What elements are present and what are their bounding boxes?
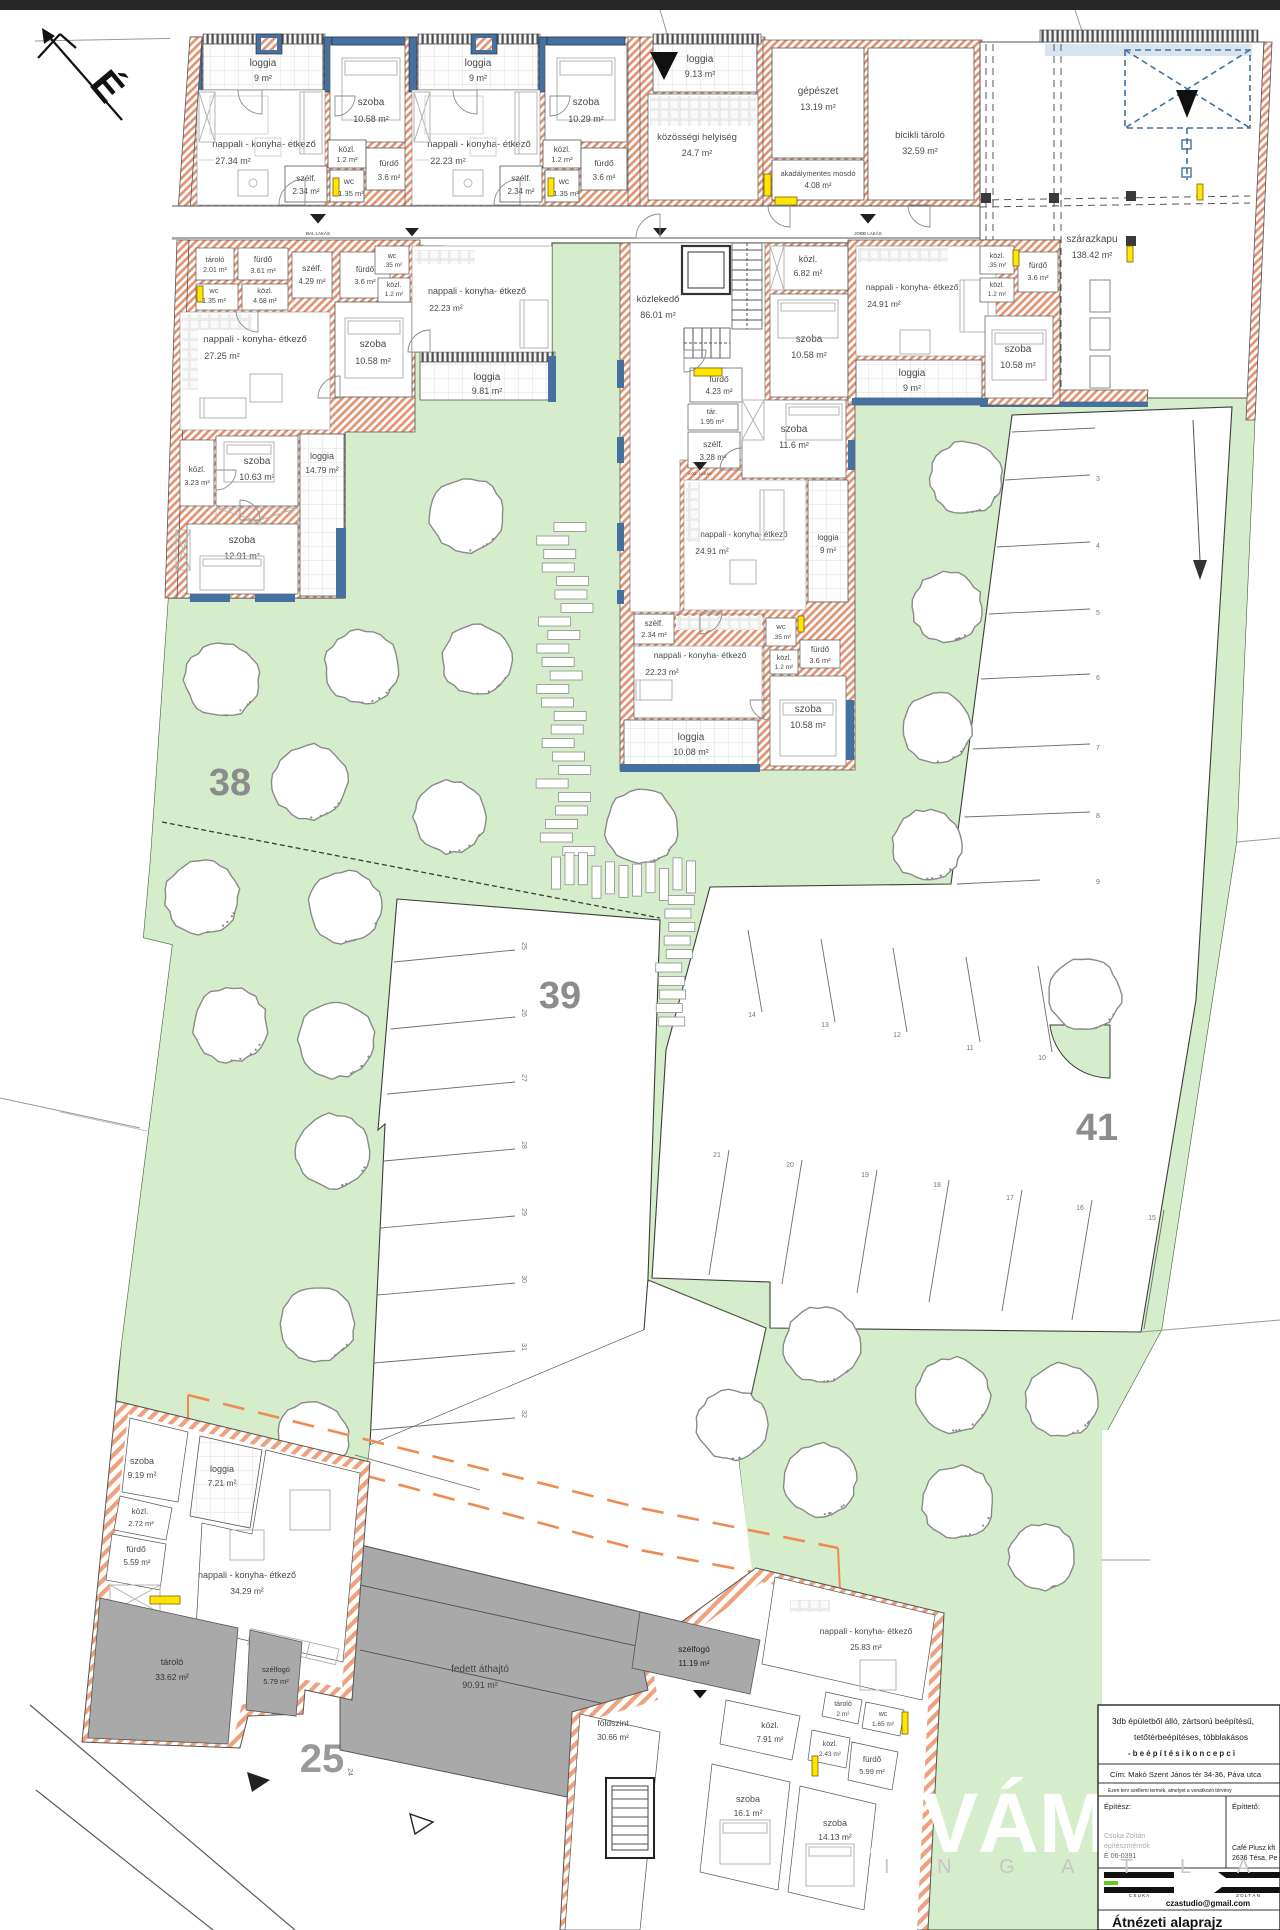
svg-text:közl.: közl. <box>554 145 570 154</box>
svg-text:10.58 m²: 10.58 m² <box>790 720 826 730</box>
svg-text:9: 9 <box>1096 879 1100 886</box>
svg-text:tároló: tároló <box>834 1701 852 1708</box>
svg-text:loggia: loggia <box>465 58 492 69</box>
svg-text:szélf.: szélf. <box>302 263 322 273</box>
svg-text:nappali - konyha- étkező: nappali - konyha- étkező <box>700 530 788 539</box>
svg-text:tároló: tároló <box>161 1657 184 1667</box>
svg-text:33.62 m²: 33.62 m² <box>155 1672 189 1682</box>
svg-text:szoba: szoba <box>795 704 822 715</box>
svg-text:Cím: Makó Szent János tér 34-3: Cím: Makó Szent János tér 34-36, Páva ut… <box>1110 1770 1262 1779</box>
svg-text:közl.: közl. <box>132 1507 148 1516</box>
svg-text:28: 28 <box>520 1141 527 1149</box>
svg-text:szélfogó: szélfogó <box>262 1665 290 1674</box>
svg-text:1.2 m²: 1.2 m² <box>336 155 358 164</box>
svg-text:fedett áthajtó: fedett áthajtó <box>451 1664 509 1675</box>
svg-text:9.81 m²: 9.81 m² <box>472 386 503 396</box>
svg-text:tetőtérbeépítéses, többlakásos: tetőtérbeépítéses, többlakásos <box>1134 1732 1248 1742</box>
svg-text:közlekedő: közlekedő <box>637 294 680 305</box>
svg-text:9 m²: 9 m² <box>820 546 836 555</box>
svg-text:közl.: közl. <box>777 655 791 662</box>
svg-text:akadálymentes mosdó: akadálymentes mosdó <box>780 169 855 178</box>
svg-text:3.23 m²: 3.23 m² <box>184 478 210 487</box>
svg-text:loggia: loggia <box>250 58 277 69</box>
svg-text:22.23 m²: 22.23 m² <box>430 156 466 166</box>
svg-text:14.79 m²: 14.79 m² <box>305 465 339 475</box>
svg-text:3.6 m²: 3.6 m² <box>593 173 616 182</box>
svg-text:7.91 m²: 7.91 m² <box>756 1735 783 1744</box>
svg-text:fürdő: fürdő <box>126 1544 146 1554</box>
svg-text:29: 29 <box>520 1208 527 1216</box>
svg-text:5: 5 <box>1096 610 1100 617</box>
svg-text:Csuka Zoltán: Csuka Zoltán <box>1104 1833 1145 1840</box>
svg-text:KÖZ. LAKÁS: KÖZ. LAKÁS <box>688 471 712 476</box>
svg-text:17: 17 <box>1006 1195 1014 1202</box>
svg-text:10.63 m²: 10.63 m² <box>239 472 275 482</box>
svg-text:Építtető:: Építtető: <box>1232 1802 1260 1811</box>
svg-text:loggia: loggia <box>817 533 839 542</box>
svg-text:4.23 m²: 4.23 m² <box>705 387 732 396</box>
svg-text:3.6 m²: 3.6 m² <box>809 656 831 665</box>
svg-text:22.23 m²: 22.23 m² <box>645 667 679 677</box>
svg-text:30: 30 <box>520 1275 527 1283</box>
svg-text:9 m²: 9 m² <box>903 383 921 393</box>
svg-text:nappali - konyha- étkező: nappali - konyha- étkező <box>654 650 747 660</box>
svg-text:22.23 m²: 22.23 m² <box>429 303 463 313</box>
svg-text:7.21 m²: 7.21 m² <box>208 1478 237 1488</box>
svg-text:wc: wc <box>387 253 397 260</box>
svg-text:11: 11 <box>966 1045 973 1052</box>
svg-text:BAL LAKÁS: BAL LAKÁS <box>306 230 330 236</box>
svg-text:I N G A T L A N I R O D A: I N G A T L A N I R O D A <box>884 1856 1280 1878</box>
svg-text:tár.: tár. <box>707 407 717 416</box>
svg-text:wc: wc <box>208 286 218 295</box>
svg-text:2.43 m²: 2.43 m² <box>819 1751 842 1758</box>
svg-text:10.29 m²: 10.29 m² <box>568 114 604 124</box>
svg-text:11.6 m²: 11.6 m² <box>779 440 809 450</box>
svg-text:12: 12 <box>893 1032 901 1039</box>
svg-text:wc: wc <box>558 176 570 186</box>
svg-text:nappali - konyha- étkező: nappali - konyha- étkező <box>866 282 959 292</box>
svg-text:JOBB LAKÁS: JOBB LAKÁS <box>854 230 882 236</box>
svg-text:14: 14 <box>748 1012 756 1019</box>
svg-text:3.6 m²: 3.6 m² <box>378 173 401 182</box>
svg-text:13.19 m²: 13.19 m² <box>800 102 836 112</box>
svg-text:8: 8 <box>1096 813 1100 820</box>
svg-text:wc: wc <box>775 622 785 631</box>
svg-text:10.58 m²: 10.58 m² <box>1000 360 1036 370</box>
svg-text:31: 31 <box>520 1343 527 1351</box>
svg-text:13: 13 <box>821 1022 829 1029</box>
svg-text:szoba: szoba <box>130 1456 154 1466</box>
svg-text:7: 7 <box>1096 745 1100 752</box>
svg-text:- b e é p í t é s i k o n c: - b e é p í t é s i k o n c e p c i <box>1128 1749 1235 1758</box>
svg-text:4.68 m²: 4.68 m² <box>253 298 277 305</box>
svg-text:24: 24 <box>346 1768 353 1776</box>
svg-text:9 m²: 9 m² <box>469 73 487 83</box>
svg-text:11.19 m²: 11.19 m² <box>679 1659 710 1668</box>
svg-text:szoba: szoba <box>358 97 385 108</box>
svg-text:32: 32 <box>520 1410 527 1418</box>
svg-text:3: 3 <box>1096 476 1100 483</box>
svg-text:34.29 m²: 34.29 m² <box>230 1586 264 1596</box>
svg-text:szoba: szoba <box>736 1794 760 1804</box>
svg-text:szoba: szoba <box>244 456 271 467</box>
svg-text:közösségi helyiség: közösségi helyiség <box>657 132 737 143</box>
svg-text:fürdő: fürdő <box>356 265 375 274</box>
svg-text:30.66 m²: 30.66 m² <box>597 1733 629 1742</box>
svg-text:39: 39 <box>539 975 581 1017</box>
svg-text:wc: wc <box>878 1711 888 1718</box>
svg-text:loggia: loggia <box>687 54 714 65</box>
svg-text:15: 15 <box>1148 1215 1156 1222</box>
svg-text:közl.: közl. <box>189 465 205 474</box>
svg-text:6: 6 <box>1096 675 1100 682</box>
svg-text:19: 19 <box>861 1172 869 1179</box>
svg-text:3.28 m²: 3.28 m² <box>699 453 726 462</box>
svg-text:fürdő: fürdő <box>811 645 830 654</box>
svg-text:fürdő: fürdő <box>594 158 614 168</box>
svg-text:C S U K A: C S U K A <box>1129 1893 1149 1898</box>
svg-text:nappali - konyha- étkező: nappali - konyha- étkező <box>198 1570 296 1580</box>
svg-text:5.59 m²: 5.59 m² <box>123 1558 150 1567</box>
svg-text:szélf.: szélf. <box>645 619 664 628</box>
svg-text:szárazkapu: szárazkapu <box>1066 234 1117 245</box>
svg-text:nappali - konyha- étkező: nappali - konyha- étkező <box>203 334 307 345</box>
svg-text:1.35 m²: 1.35 m² <box>553 189 579 198</box>
svg-text:szoba: szoba <box>229 535 256 546</box>
svg-text:loggia: loggia <box>474 372 501 383</box>
svg-text:.35 m²: .35 m² <box>988 262 1007 269</box>
svg-text:4.29 m²: 4.29 m² <box>298 277 325 286</box>
svg-text:4.08 m²: 4.08 m² <box>804 181 831 190</box>
svg-text:1.35 m²: 1.35 m² <box>338 189 364 198</box>
svg-text:fürdő: fürdő <box>254 255 273 264</box>
svg-text:2.34 m²: 2.34 m² <box>507 187 534 196</box>
svg-text:.35 m²: .35 m² <box>773 634 792 641</box>
svg-text:1.95 m²: 1.95 m² <box>700 419 724 426</box>
svg-text:közl.: közl. <box>761 1720 778 1730</box>
svg-text:Építész:: Építész: <box>1104 1802 1131 1811</box>
svg-text:5.79 m²: 5.79 m² <box>263 1677 289 1686</box>
svg-text:építészmérnök: építészmérnök <box>1104 1843 1150 1850</box>
svg-text:138.42 m²: 138.42 m² <box>1072 250 1113 260</box>
svg-text:közl.: közl. <box>387 282 401 289</box>
svg-text:közl.: közl. <box>799 254 818 264</box>
svg-text:27.34 m²: 27.34 m² <box>215 156 251 166</box>
svg-text:szoba: szoba <box>823 1818 847 1828</box>
svg-text:fürdő: fürdő <box>1029 261 1048 270</box>
svg-text:20: 20 <box>786 1162 794 1169</box>
svg-text:1.2 m²: 1.2 m² <box>385 291 404 298</box>
svg-text:3.61 m²: 3.61 m² <box>250 266 276 275</box>
svg-text:9 m²: 9 m² <box>254 73 272 83</box>
svg-text:32.59 m²: 32.59 m² <box>902 146 938 156</box>
svg-text:Ezen terv szellemi termék, ame: Ezen terv szellemi termék, amelyet a von… <box>1108 1788 1232 1794</box>
svg-text:25: 25 <box>300 1737 345 1781</box>
svg-text:10.58 m²: 10.58 m² <box>355 356 391 366</box>
svg-text:27.25 m²: 27.25 m² <box>204 351 240 361</box>
svg-text:szoba: szoba <box>781 424 808 435</box>
svg-text:24.7 m²: 24.7 m² <box>682 148 713 158</box>
svg-text:szoba: szoba <box>573 97 600 108</box>
svg-text:Café Plusz kft: Café Plusz kft <box>1232 1845 1275 1852</box>
svg-text:.35 m²: .35 m² <box>384 262 403 269</box>
svg-text:25.83 m²: 25.83 m² <box>850 1643 882 1652</box>
svg-text:szélf.: szélf. <box>703 439 723 449</box>
svg-text:21: 21 <box>713 1152 721 1159</box>
svg-text:2.34 m²: 2.34 m² <box>292 187 319 196</box>
svg-text:38: 38 <box>209 762 251 804</box>
svg-text:szélf.: szélf. <box>511 173 531 183</box>
svg-text:24.91 m²: 24.91 m² <box>695 546 729 556</box>
svg-text:közl.: közl. <box>339 145 355 154</box>
svg-text:közl.: közl. <box>257 286 272 295</box>
svg-text:loggia: loggia <box>678 732 705 743</box>
svg-text:90.91 m²: 90.91 m² <box>462 1680 498 1690</box>
svg-text:1.2 m²: 1.2 m² <box>775 664 794 671</box>
svg-text:szoba: szoba <box>360 339 387 350</box>
svg-text:1.2 m²: 1.2 m² <box>988 291 1007 298</box>
svg-text:5.99 m²: 5.99 m² <box>859 1767 885 1776</box>
svg-text:9.19 m²: 9.19 m² <box>128 1470 157 1480</box>
svg-text:1.35 m²: 1.35 m² <box>202 298 226 305</box>
svg-text:loggia: loggia <box>210 1464 234 1474</box>
svg-text:szoba: szoba <box>1005 344 1032 355</box>
svg-text:3.6 m²: 3.6 m² <box>354 277 376 286</box>
svg-text:loggia: loggia <box>310 451 334 461</box>
svg-text:fürdő: fürdő <box>863 1755 882 1764</box>
svg-text:9.13 m²: 9.13 m² <box>685 69 716 79</box>
svg-text:3db épületből álló, zártsorú b: 3db épületből álló, zártsorú beépítésű, <box>1112 1716 1254 1726</box>
svg-text:Z O L T Á N: Z O L T Á N <box>1236 1892 1260 1898</box>
svg-text:16: 16 <box>1076 1205 1084 1212</box>
svg-text:szélfogó: szélfogó <box>678 1644 710 1654</box>
svg-text:25: 25 <box>520 942 527 950</box>
svg-text:27: 27 <box>520 1074 527 1082</box>
svg-text:bicikli tároló: bicikli tároló <box>895 130 945 141</box>
svg-text:wc: wc <box>343 176 355 186</box>
svg-text:gépészet: gépészet <box>798 86 839 97</box>
svg-text:1.2 m²: 1.2 m² <box>551 155 573 164</box>
svg-text:2.34 m²: 2.34 m² <box>641 630 667 639</box>
svg-text:6.82 m²: 6.82 m² <box>794 268 823 278</box>
svg-text:Átnézeti alaprajz: Átnézeti alaprajz <box>1112 1914 1222 1930</box>
svg-text:2 m²: 2 m² <box>837 1711 851 1718</box>
svg-text:10: 10 <box>1038 1055 1046 1062</box>
svg-text:10.58 m²: 10.58 m² <box>791 350 827 360</box>
svg-text:loggia: loggia <box>899 368 926 379</box>
svg-text:26: 26 <box>520 1009 527 1017</box>
svg-text:szoba: szoba <box>796 334 823 345</box>
svg-text:tároló: tároló <box>206 255 225 264</box>
svg-text:czastudio@gmail.com: czastudio@gmail.com <box>1166 1899 1250 1908</box>
svg-text:18: 18 <box>933 1182 941 1189</box>
svg-text:2.01 m²: 2.01 m² <box>203 267 227 274</box>
svg-text:2.72 m²: 2.72 m² <box>128 1519 154 1528</box>
svg-text:41: 41 <box>1076 1107 1118 1149</box>
svg-text:közl.: közl. <box>823 1741 837 1748</box>
svg-text:közl.: közl. <box>990 282 1004 289</box>
svg-text:szélf.: szélf. <box>296 173 316 183</box>
svg-text:16.1 m²: 16.1 m² <box>734 1808 763 1818</box>
svg-text:86.01 m²: 86.01 m² <box>640 310 676 320</box>
svg-text:nappali - konyha- étkező: nappali - konyha- étkező <box>428 286 526 296</box>
svg-text:24.91 m²: 24.91 m² <box>867 299 901 309</box>
svg-text:14.13 m²: 14.13 m² <box>818 1832 852 1842</box>
svg-text:közl.: közl. <box>990 253 1004 260</box>
svg-text:4: 4 <box>1096 543 1100 550</box>
svg-text:10.08 m²: 10.08 m² <box>673 747 709 757</box>
svg-text:földszint: földszint <box>597 1718 629 1728</box>
svg-text:fürdő: fürdő <box>379 158 399 168</box>
svg-text:1.65 m²: 1.65 m² <box>872 1721 895 1728</box>
svg-text:10.58 m²: 10.58 m² <box>353 114 389 124</box>
svg-text:nappali - konyha- étkező: nappali - konyha- étkező <box>820 1626 913 1636</box>
svg-text:3.6 m²: 3.6 m² <box>1027 273 1049 282</box>
